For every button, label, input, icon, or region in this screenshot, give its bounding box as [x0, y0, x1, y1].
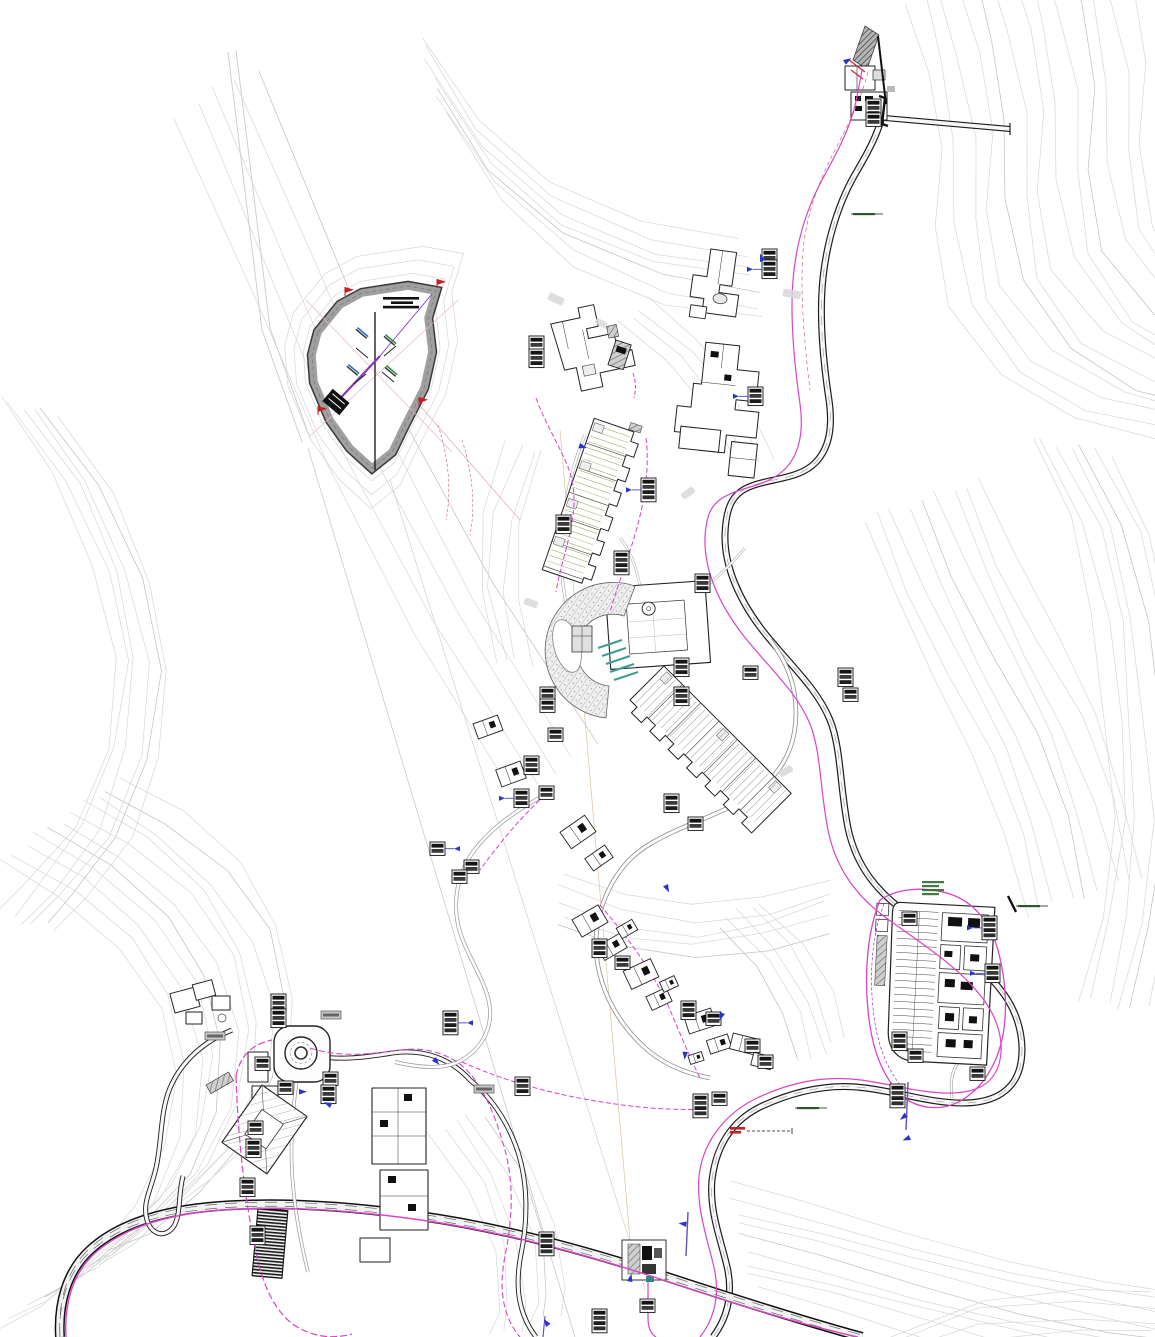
- callout-box: [866, 113, 881, 126]
- reservoir: [306, 286, 473, 535]
- callout-box: [743, 666, 758, 679]
- callout-box: [430, 842, 460, 855]
- green-text-label: [1016, 905, 1048, 907]
- villa-building: [688, 1052, 704, 1065]
- callout-box: [248, 1121, 263, 1134]
- callout-box: [758, 1055, 773, 1068]
- callout-box: [540, 699, 555, 712]
- callout-box: [592, 939, 607, 958]
- callout-box: [674, 658, 689, 677]
- gray-tag: [321, 1011, 341, 1019]
- callout-box: [693, 1094, 708, 1118]
- utility-lines: [66, 70, 1006, 1337]
- callout-box: [240, 1178, 255, 1197]
- callout-box: [278, 1081, 293, 1094]
- callout-box: [529, 336, 544, 349]
- callout-box: [688, 817, 703, 830]
- callout-box: [640, 1299, 655, 1312]
- callout-box: [695, 574, 710, 593]
- callout-box: [890, 1084, 905, 1108]
- callout-box: [892, 1032, 907, 1051]
- callout-box: [843, 688, 858, 701]
- road-network: [60, 104, 1022, 1337]
- callout-box: [539, 1232, 554, 1256]
- callout-box: [515, 1077, 530, 1096]
- callout-box: [529, 349, 544, 368]
- callout-box: [452, 870, 467, 883]
- callout-box: [674, 687, 689, 706]
- callout-box: [970, 1067, 985, 1080]
- callout-box: [614, 551, 629, 575]
- bottomleft-cluster-a: [170, 980, 230, 1024]
- callout-box: [747, 260, 777, 279]
- terrain-patch: [680, 486, 695, 500]
- callout-box: [592, 1309, 607, 1333]
- callout-box: [271, 1009, 286, 1028]
- gray-tag: [474, 1085, 494, 1093]
- callout-box: [323, 1072, 338, 1085]
- callout-box: [626, 478, 656, 502]
- upper-right-complex-a: [687, 247, 744, 323]
- terrain-patch: [523, 597, 539, 608]
- callout-box: [548, 728, 563, 741]
- callout-box: [556, 515, 571, 534]
- callout-box: [246, 1139, 261, 1158]
- blue-arrow-marker: [663, 884, 672, 894]
- upper-villa-drain: [633, 373, 635, 398]
- water-main-along-road: [699, 70, 1002, 1337]
- villa-building: [496, 761, 527, 787]
- callout-box: [250, 1226, 265, 1245]
- pump-station: [622, 1240, 666, 1282]
- callout-box: [255, 1057, 270, 1070]
- bottom-highway: [60, 1202, 862, 1337]
- callout-box: [681, 1001, 696, 1020]
- villa-building: [560, 815, 596, 849]
- callout-box: [321, 1085, 336, 1104]
- callout-box: [745, 1039, 760, 1052]
- red-annotation: [730, 1127, 792, 1134]
- callout-box: [712, 1092, 727, 1105]
- callout-box: [443, 1011, 473, 1035]
- site-plan-drawing: [0, 0, 1155, 1337]
- blue-arrow-marker: [901, 1135, 911, 1143]
- green-text-label: [922, 881, 944, 895]
- callout-box: [524, 756, 539, 775]
- gray-tag: [205, 1032, 225, 1040]
- site-plan-page: [0, 0, 1155, 1337]
- blue-arrow-marker: [682, 1052, 688, 1060]
- terrain-patch: [782, 288, 801, 299]
- callout-box: [706, 1012, 721, 1025]
- callout-box: [499, 789, 529, 808]
- villa-building: [585, 845, 613, 871]
- callout-box: [908, 1049, 923, 1062]
- callout-box: [838, 668, 853, 687]
- roundabout: [274, 1026, 330, 1082]
- terrain-patch: [547, 292, 565, 306]
- blue-arrow-marker: [541, 1317, 550, 1327]
- terraced-building-b: [624, 666, 791, 833]
- callout-box: [664, 794, 679, 813]
- callout-box: [540, 687, 555, 700]
- callout-box: [615, 956, 630, 969]
- blue-arrow-marker: [299, 1089, 307, 1095]
- villa-building: [706, 1034, 731, 1054]
- callout-box: [539, 786, 554, 799]
- right-complex: [869, 901, 995, 1065]
- green-text-label: [795, 1107, 827, 1109]
- blue-arrow-marker: [843, 56, 853, 65]
- callout-box: [902, 912, 917, 925]
- main-road: [712, 104, 1022, 1337]
- green-text-label: [851, 213, 883, 215]
- blue-arrow-marker: [678, 1220, 687, 1227]
- villa-building: [473, 715, 503, 739]
